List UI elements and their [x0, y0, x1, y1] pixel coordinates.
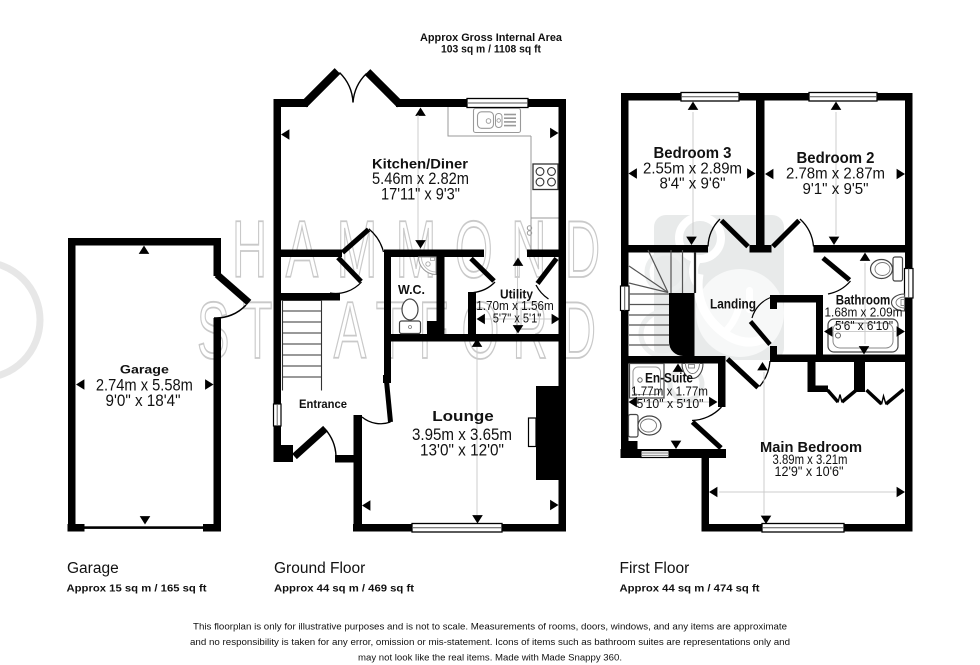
svg-text:Approx Gross Internal Area: Approx Gross Internal Area — [420, 32, 563, 44]
svg-text:Garage: Garage — [120, 363, 169, 377]
svg-text:Landing: Landing — [710, 296, 756, 312]
svg-text:This floorplan is only for ill: This floorplan is only for illustrative … — [193, 622, 787, 632]
svg-text:First Floor: First Floor — [620, 560, 690, 577]
svg-text:9'1" x 9'5": 9'1" x 9'5" — [803, 181, 869, 198]
svg-text:Approx 15 sq m / 165 sq ft: Approx 15 sq m / 165 sq ft — [67, 583, 208, 595]
svg-text:W.C.: W.C. — [398, 283, 425, 297]
svg-text:Approx 44 sq m / 469 sq ft: Approx 44 sq m / 469 sq ft — [274, 583, 415, 595]
svg-text:Ground Floor: Ground Floor — [274, 560, 365, 577]
svg-text:Garage: Garage — [67, 560, 119, 577]
svg-text:17'11" x 9'3": 17'11" x 9'3" — [381, 186, 460, 204]
svg-text:Entrance: Entrance — [299, 399, 347, 411]
svg-text:13'0" x 12'0": 13'0" x 12'0" — [420, 442, 504, 460]
svg-text:may not look like the real ite: may not look like the real items. Made w… — [358, 652, 622, 662]
svg-text:103 sq m / 1108 sq ft: 103 sq m / 1108 sq ft — [441, 44, 541, 56]
svg-text:5'7" x 5'1": 5'7" x 5'1" — [493, 311, 542, 326]
svg-text:and no responsibility is taken: and no responsibility is taken for any e… — [190, 637, 790, 647]
svg-text:Lounge: Lounge — [432, 409, 494, 425]
svg-text:5'10" x 5'10": 5'10" x 5'10" — [637, 396, 704, 411]
svg-text:2.78m x 2.87m: 2.78m x 2.87m — [786, 166, 885, 183]
svg-text:Approx 44 sq m / 474 sq ft: Approx 44 sq m / 474 sq ft — [620, 583, 761, 595]
svg-text:Bedroom 3: Bedroom 3 — [654, 145, 732, 162]
svg-text:5'6" x 6'10": 5'6" x 6'10" — [835, 318, 893, 333]
svg-text:9'0" x 18'4": 9'0" x 18'4" — [106, 392, 181, 410]
svg-text:8'4" x 9'6": 8'4" x 9'6" — [660, 176, 726, 193]
svg-text:12'9" x 10'6": 12'9" x 10'6" — [775, 464, 844, 479]
svg-text:Bedroom 2: Bedroom 2 — [797, 150, 875, 167]
